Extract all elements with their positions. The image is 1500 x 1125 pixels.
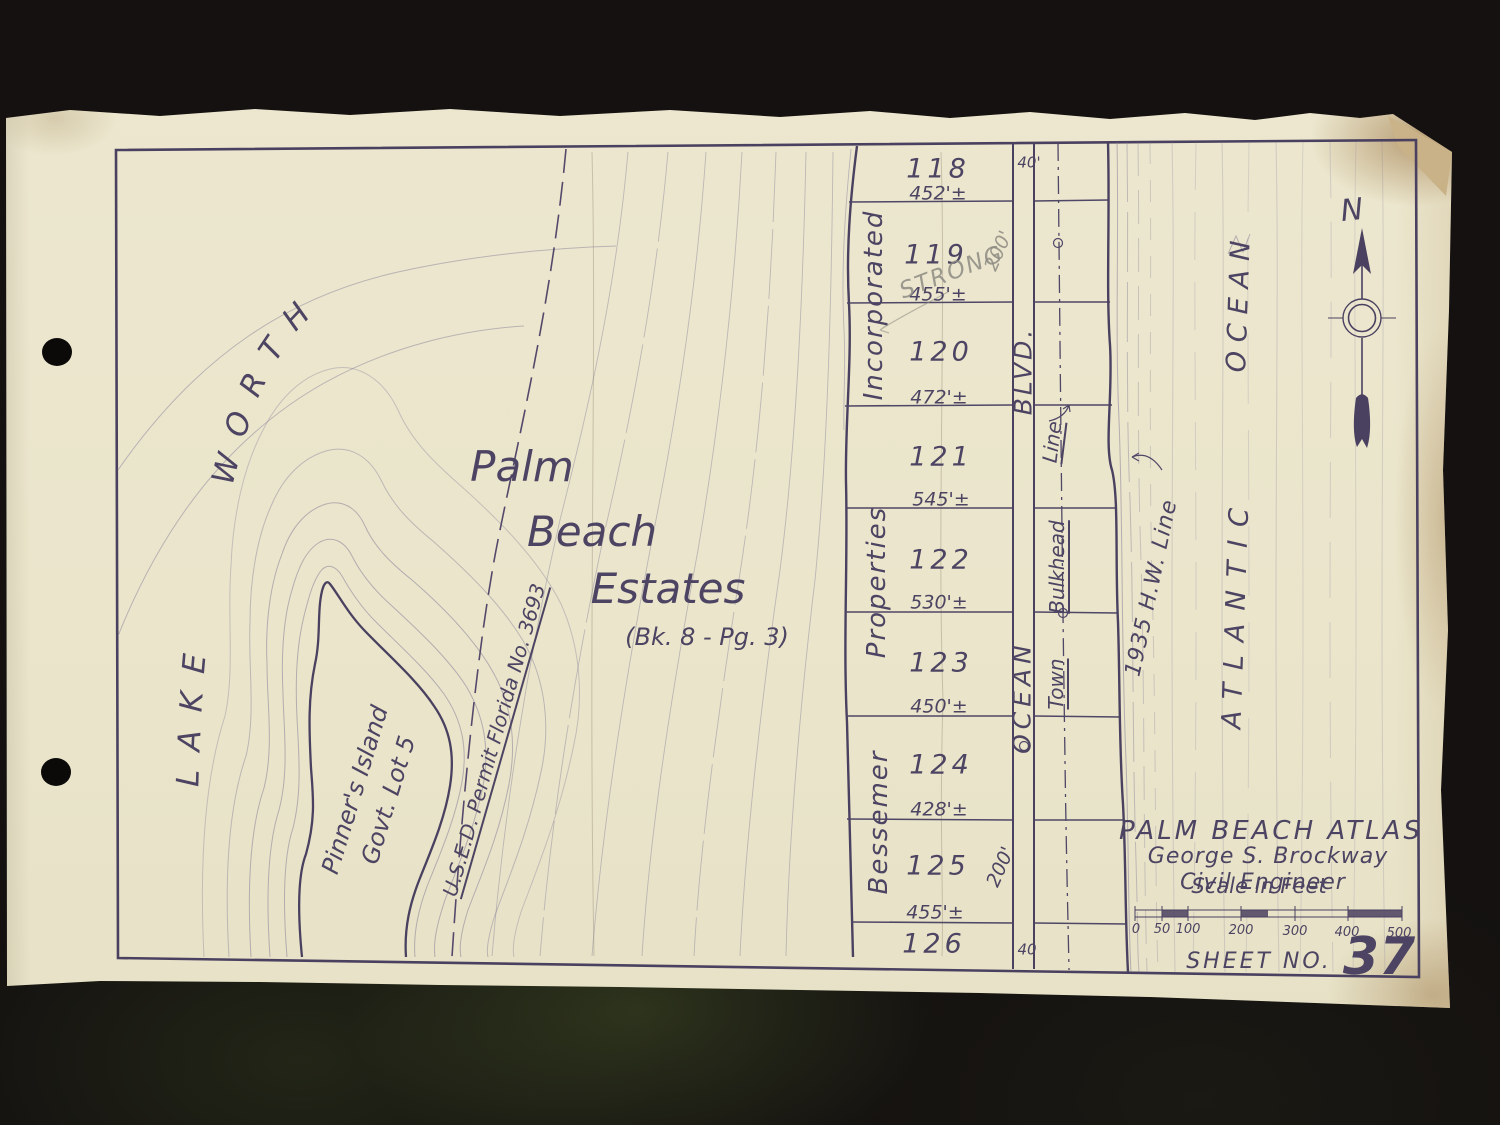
ocean-name-ocean: OCEAN xyxy=(1223,231,1255,373)
atlas-title: PALM BEACH ATLAS xyxy=(1119,818,1423,844)
lot-frontage: 545'± xyxy=(912,491,969,510)
sheet-number-value: 37 xyxy=(1343,931,1415,983)
street-name-blvd: BLVD. xyxy=(1011,327,1036,416)
lot-number: 118 xyxy=(906,156,970,183)
lot-frontage: 472'± xyxy=(910,389,967,408)
lot-number: 124 xyxy=(909,752,973,779)
scale-tick-label: 50 xyxy=(1154,922,1171,937)
scale-caption: Scale in Feet xyxy=(1191,876,1326,897)
street-name-ocean: OCEAN xyxy=(1010,640,1035,754)
ocean-name-atlantic: ATLANTIC xyxy=(1218,495,1253,730)
atlas-author: George S. Brockway xyxy=(1148,846,1388,868)
hole-punch xyxy=(42,338,72,366)
scale-tick-label: 0 xyxy=(1132,922,1140,937)
lot-frontage: 452'± xyxy=(909,185,966,204)
street-width-top: 40' xyxy=(1017,156,1040,171)
scale-tick-label: 200 xyxy=(1229,923,1254,938)
bulkhead-label-town: Town xyxy=(1046,658,1066,709)
north-letter: N xyxy=(1339,195,1364,227)
lot-frontage: 455'± xyxy=(906,904,963,923)
plat-reference: (Bk. 8 - Pg. 3) xyxy=(625,625,789,649)
sheet-number-label: SHEET NO. xyxy=(1186,951,1332,973)
subdivision-name-line1: Palm xyxy=(470,446,574,488)
lot-frontage: 428'± xyxy=(910,801,967,820)
bulkhead-label-line: Line xyxy=(1040,420,1065,464)
lot-frontage: 450'± xyxy=(910,698,967,717)
lot-number: 126 xyxy=(902,931,966,958)
photo-of-atlas-sheet: LAKE WORTH Pinner's Island Govt. Lot 5 U… xyxy=(0,0,1500,1125)
lot-frontage: 530'± xyxy=(910,594,967,613)
scale-tick-label: 300 xyxy=(1283,924,1308,939)
lot-number: 121 xyxy=(909,444,973,471)
lot-number: 122 xyxy=(909,547,973,574)
bulkhead-label-bulkhead: Bulkhead xyxy=(1047,520,1067,613)
hole-punch xyxy=(41,758,71,786)
lot-number: 120 xyxy=(909,339,973,366)
street-width-bottom: 40 xyxy=(1017,943,1036,958)
owner-label-incorporated: Incorporated xyxy=(861,210,887,401)
lot-number: 125 xyxy=(906,853,970,880)
owner-label-properties: Properties xyxy=(864,506,890,658)
subdivision-name-line2: Beach xyxy=(527,511,657,553)
lot-number: 123 xyxy=(909,650,973,677)
subdivision-name-line3: Estates xyxy=(591,568,746,610)
scale-tick-label: 100 xyxy=(1176,922,1201,937)
owner-label-bessemer: Bessemer xyxy=(866,750,892,895)
